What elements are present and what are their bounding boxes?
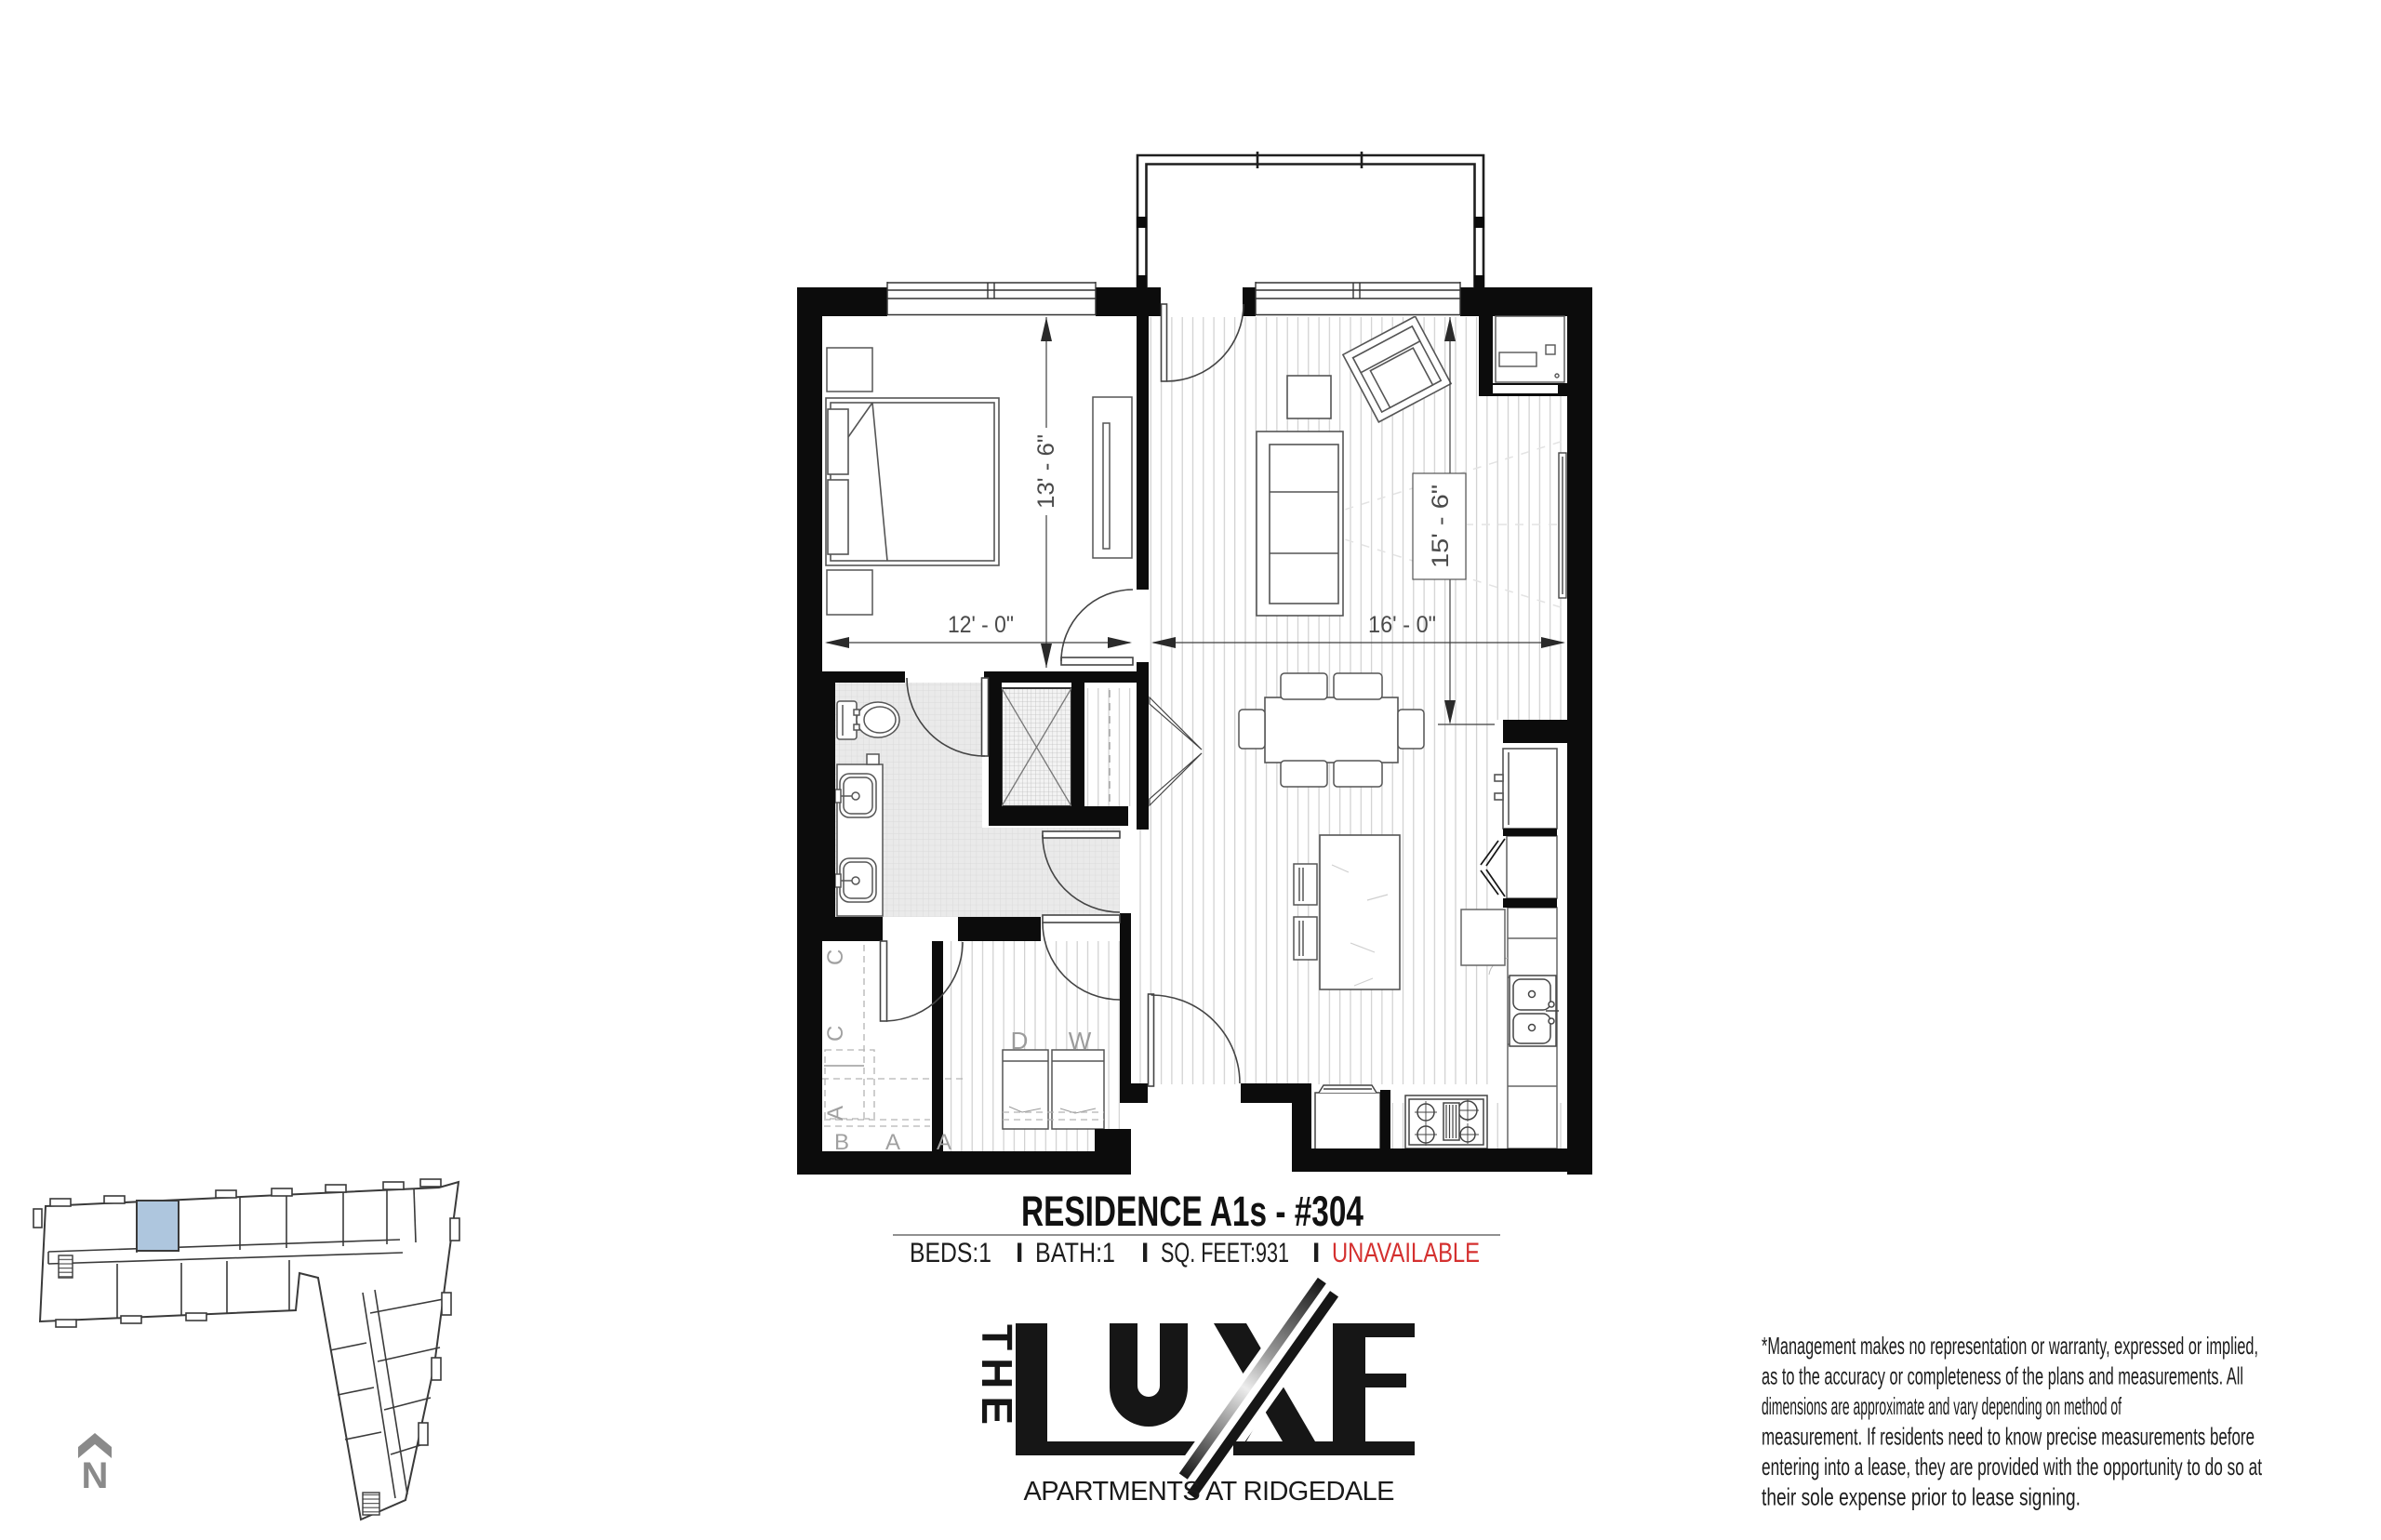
svg-text:I: I	[1016, 1238, 1023, 1268]
svg-text:A: A	[885, 1130, 900, 1155]
svg-text:dimensions are approximate and: dimensions are approximate and vary depe…	[1762, 1392, 2122, 1420]
svg-text:as to the accuracy or complete: as to the accuracy or completeness of th…	[1762, 1362, 2243, 1390]
svg-text:D: D	[1011, 1027, 1029, 1055]
svg-text:I: I	[1141, 1238, 1149, 1268]
svg-text:A: A	[937, 1130, 951, 1155]
svg-text:13' - 6": 13' - 6"	[1033, 434, 1059, 509]
svg-text:C: C	[823, 1026, 848, 1042]
svg-text:*Management makes no represent: *Management makes no representation or w…	[1762, 1332, 2258, 1360]
svg-text:UNAVAILABLE: UNAVAILABLE	[1332, 1238, 1480, 1268]
svg-text:SQ. FEET:931: SQ. FEET:931	[1161, 1238, 1289, 1268]
svg-text:N: N	[82, 1455, 109, 1496]
svg-text:their sole expense prior to le: their sole expense prior to lease signin…	[1762, 1483, 2081, 1511]
svg-text:B: B	[834, 1130, 849, 1155]
svg-text:RESIDENCE A1s - #304: RESIDENCE A1s - #304	[1021, 1188, 1363, 1235]
svg-text:BATH:1: BATH:1	[1035, 1238, 1115, 1268]
svg-text:12' - 0": 12' - 0"	[948, 612, 1014, 638]
svg-text:W: W	[1069, 1027, 1092, 1055]
svg-text:A: A	[823, 1106, 848, 1121]
svg-text:measurement. If residents need: measurement. If residents need to know p…	[1762, 1423, 2255, 1451]
svg-text:15' - 6": 15' - 6"	[1428, 485, 1454, 568]
svg-text:APARTMENTS AT RIDGEDALE: APARTMENTS AT RIDGEDALE	[1024, 1477, 1395, 1507]
svg-text:16' - 0": 16' - 0"	[1368, 612, 1436, 638]
svg-text:C: C	[823, 949, 848, 965]
svg-text:I: I	[1312, 1238, 1320, 1268]
svg-text:BEDS:1: BEDS:1	[910, 1238, 991, 1268]
svg-text:entering into a lease, they ar: entering into a lease, they are provided…	[1762, 1453, 2263, 1480]
svg-text:THE: THE	[973, 1324, 1021, 1432]
